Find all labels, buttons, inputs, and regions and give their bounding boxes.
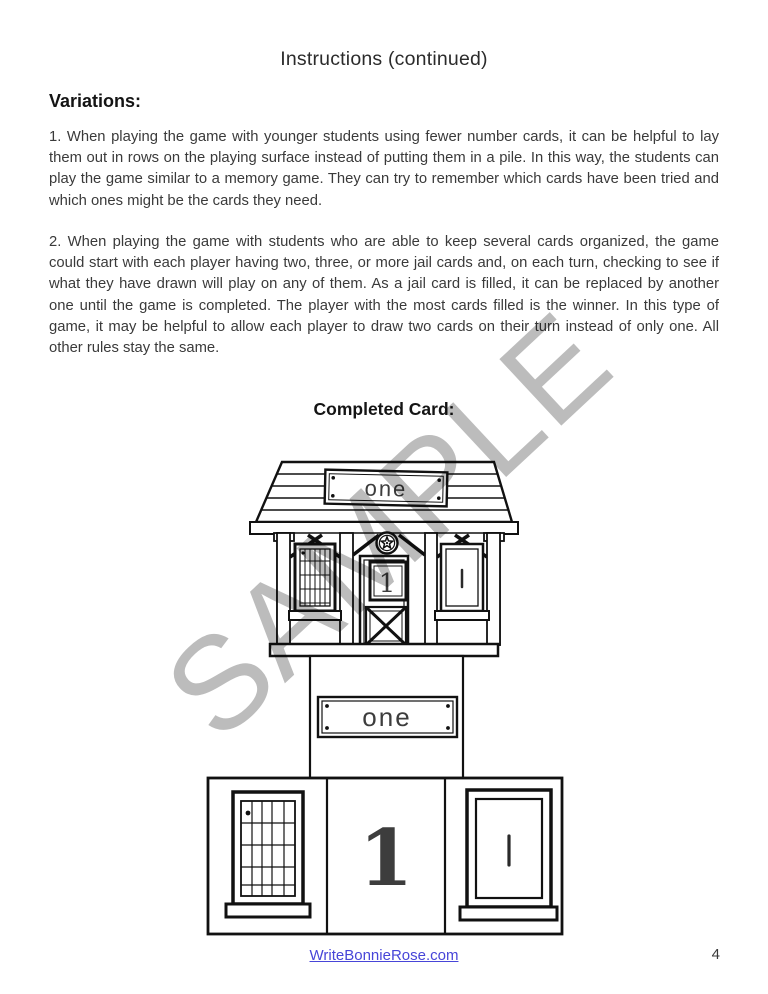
document-page: Instructions (continued) Variations: 1. … (0, 0, 768, 994)
screw-icon (325, 726, 329, 730)
door-sill (460, 907, 557, 920)
screw-icon (446, 704, 450, 708)
completed-card-heading: Completed Card: (0, 399, 768, 420)
house-base (270, 644, 498, 656)
house-tally-window (435, 544, 489, 620)
pedestal-sign: one (318, 697, 457, 737)
pedestal-block: one (310, 656, 463, 778)
screw-icon (446, 726, 450, 730)
window-sill (289, 611, 341, 620)
house-roof: one (250, 462, 518, 534)
door-card-number: 1 (379, 569, 396, 599)
variations-heading: Variations: (49, 91, 141, 112)
window-dot (246, 811, 251, 816)
page-title: Instructions (continued) (0, 48, 768, 71)
sheriff-star-icon (377, 533, 398, 554)
strip-tally-door (460, 790, 557, 920)
footer: WriteBonnieRose.com (0, 947, 768, 964)
footer-link[interactable]: WriteBonnieRose.com (310, 947, 459, 964)
strip-number: 1 (359, 813, 413, 904)
strip-jail-window (226, 792, 310, 917)
window-sill (435, 611, 489, 620)
completed-card-illustration: one (194, 455, 574, 945)
variations-paragraph-1: 1. When playing the game with younger st… (49, 127, 719, 212)
roof-sign: one (325, 470, 448, 507)
window-sill (226, 904, 310, 917)
roof-sign-label: one (364, 476, 407, 502)
pedestal-sign-label: one (362, 702, 411, 732)
screw-icon (325, 704, 329, 708)
variations-paragraph-2: 2. When playing the game with students w… (49, 232, 719, 359)
door-crossbuck (366, 607, 406, 645)
jailhouse: one (250, 462, 518, 656)
house-door: 1 (360, 556, 408, 647)
page-number: 4 (712, 946, 720, 963)
house-jail-window (289, 544, 341, 620)
door-number-card: 1 (370, 562, 406, 600)
number-strip: 1 (208, 778, 562, 934)
window-dot (301, 551, 304, 554)
